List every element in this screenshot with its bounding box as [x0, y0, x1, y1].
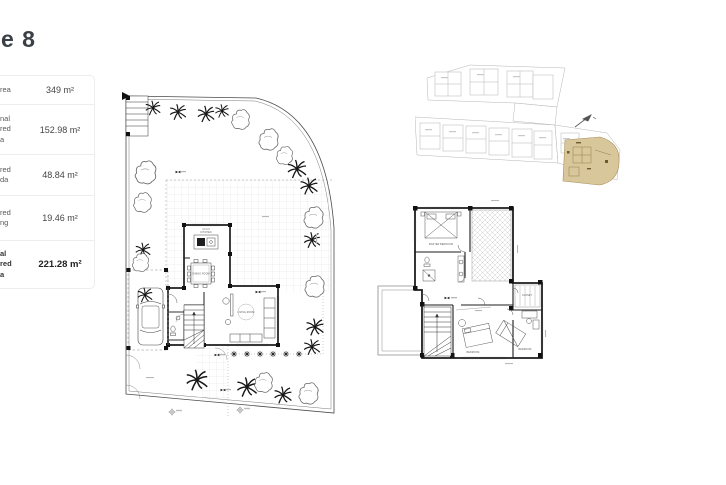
row-value: 349 m² — [26, 85, 94, 95]
row-value: 221.28 m² — [26, 259, 94, 270]
table-row: nal red a 152.98 m² — [0, 104, 94, 154]
ground-floor-plan: KITCHEN DINING ROOM LIVING ROOM — [118, 82, 343, 430]
closet-label: CLOSET — [522, 295, 533, 297]
living-room-label: LIVING ROOM — [238, 312, 255, 314]
bedroom-center-label: BEDROOM — [467, 352, 480, 354]
row-label: nal red a — [0, 114, 26, 144]
kitchen — [194, 235, 218, 249]
car — [137, 288, 165, 345]
staircase — [184, 305, 204, 348]
north-arrow-icon — [575, 115, 596, 127]
upper-staircase — [424, 307, 451, 356]
row-label: red da — [0, 165, 26, 185]
highlighted-plot — [563, 137, 619, 185]
first-floor-plan: MASTER BEDROOM — [365, 190, 565, 382]
row-label: rea — [0, 85, 26, 95]
master-bedroom-label: MASTER BEDROOM — [429, 243, 453, 246]
gate-arcs — [126, 355, 140, 399]
row-label: al red a — [0, 249, 26, 279]
balcony — [378, 286, 422, 355]
table-row: red da 48.84 m² — [0, 154, 94, 195]
row-value: 48.84 m² — [26, 170, 94, 180]
roof-terrace — [472, 210, 511, 281]
area-table: rea 349 m² nal red a 152.98 m² red da 48… — [0, 75, 95, 289]
dining-room-label: DINING ROOM — [192, 274, 209, 276]
site-plan — [415, 55, 630, 190]
table-row: red ng 19.46 m² — [0, 195, 94, 240]
table-row-total: al red a 221.28 m² — [0, 240, 94, 288]
row-value: 19.46 m² — [26, 213, 94, 223]
row-label: red ng — [0, 208, 26, 228]
floor-plan-page: e 8 rea 349 m² nal red a 152.98 m² red d… — [0, 0, 726, 485]
carport — [127, 268, 169, 350]
kitchen-label: KITCHEN — [200, 232, 211, 234]
table-row: rea 349 m² — [0, 76, 94, 104]
row-value: 152.98 m² — [26, 125, 94, 135]
page-title: e 8 — [1, 26, 36, 53]
external-stairs — [122, 92, 148, 136]
bedroom-right-label: BEDROOM — [519, 349, 532, 351]
